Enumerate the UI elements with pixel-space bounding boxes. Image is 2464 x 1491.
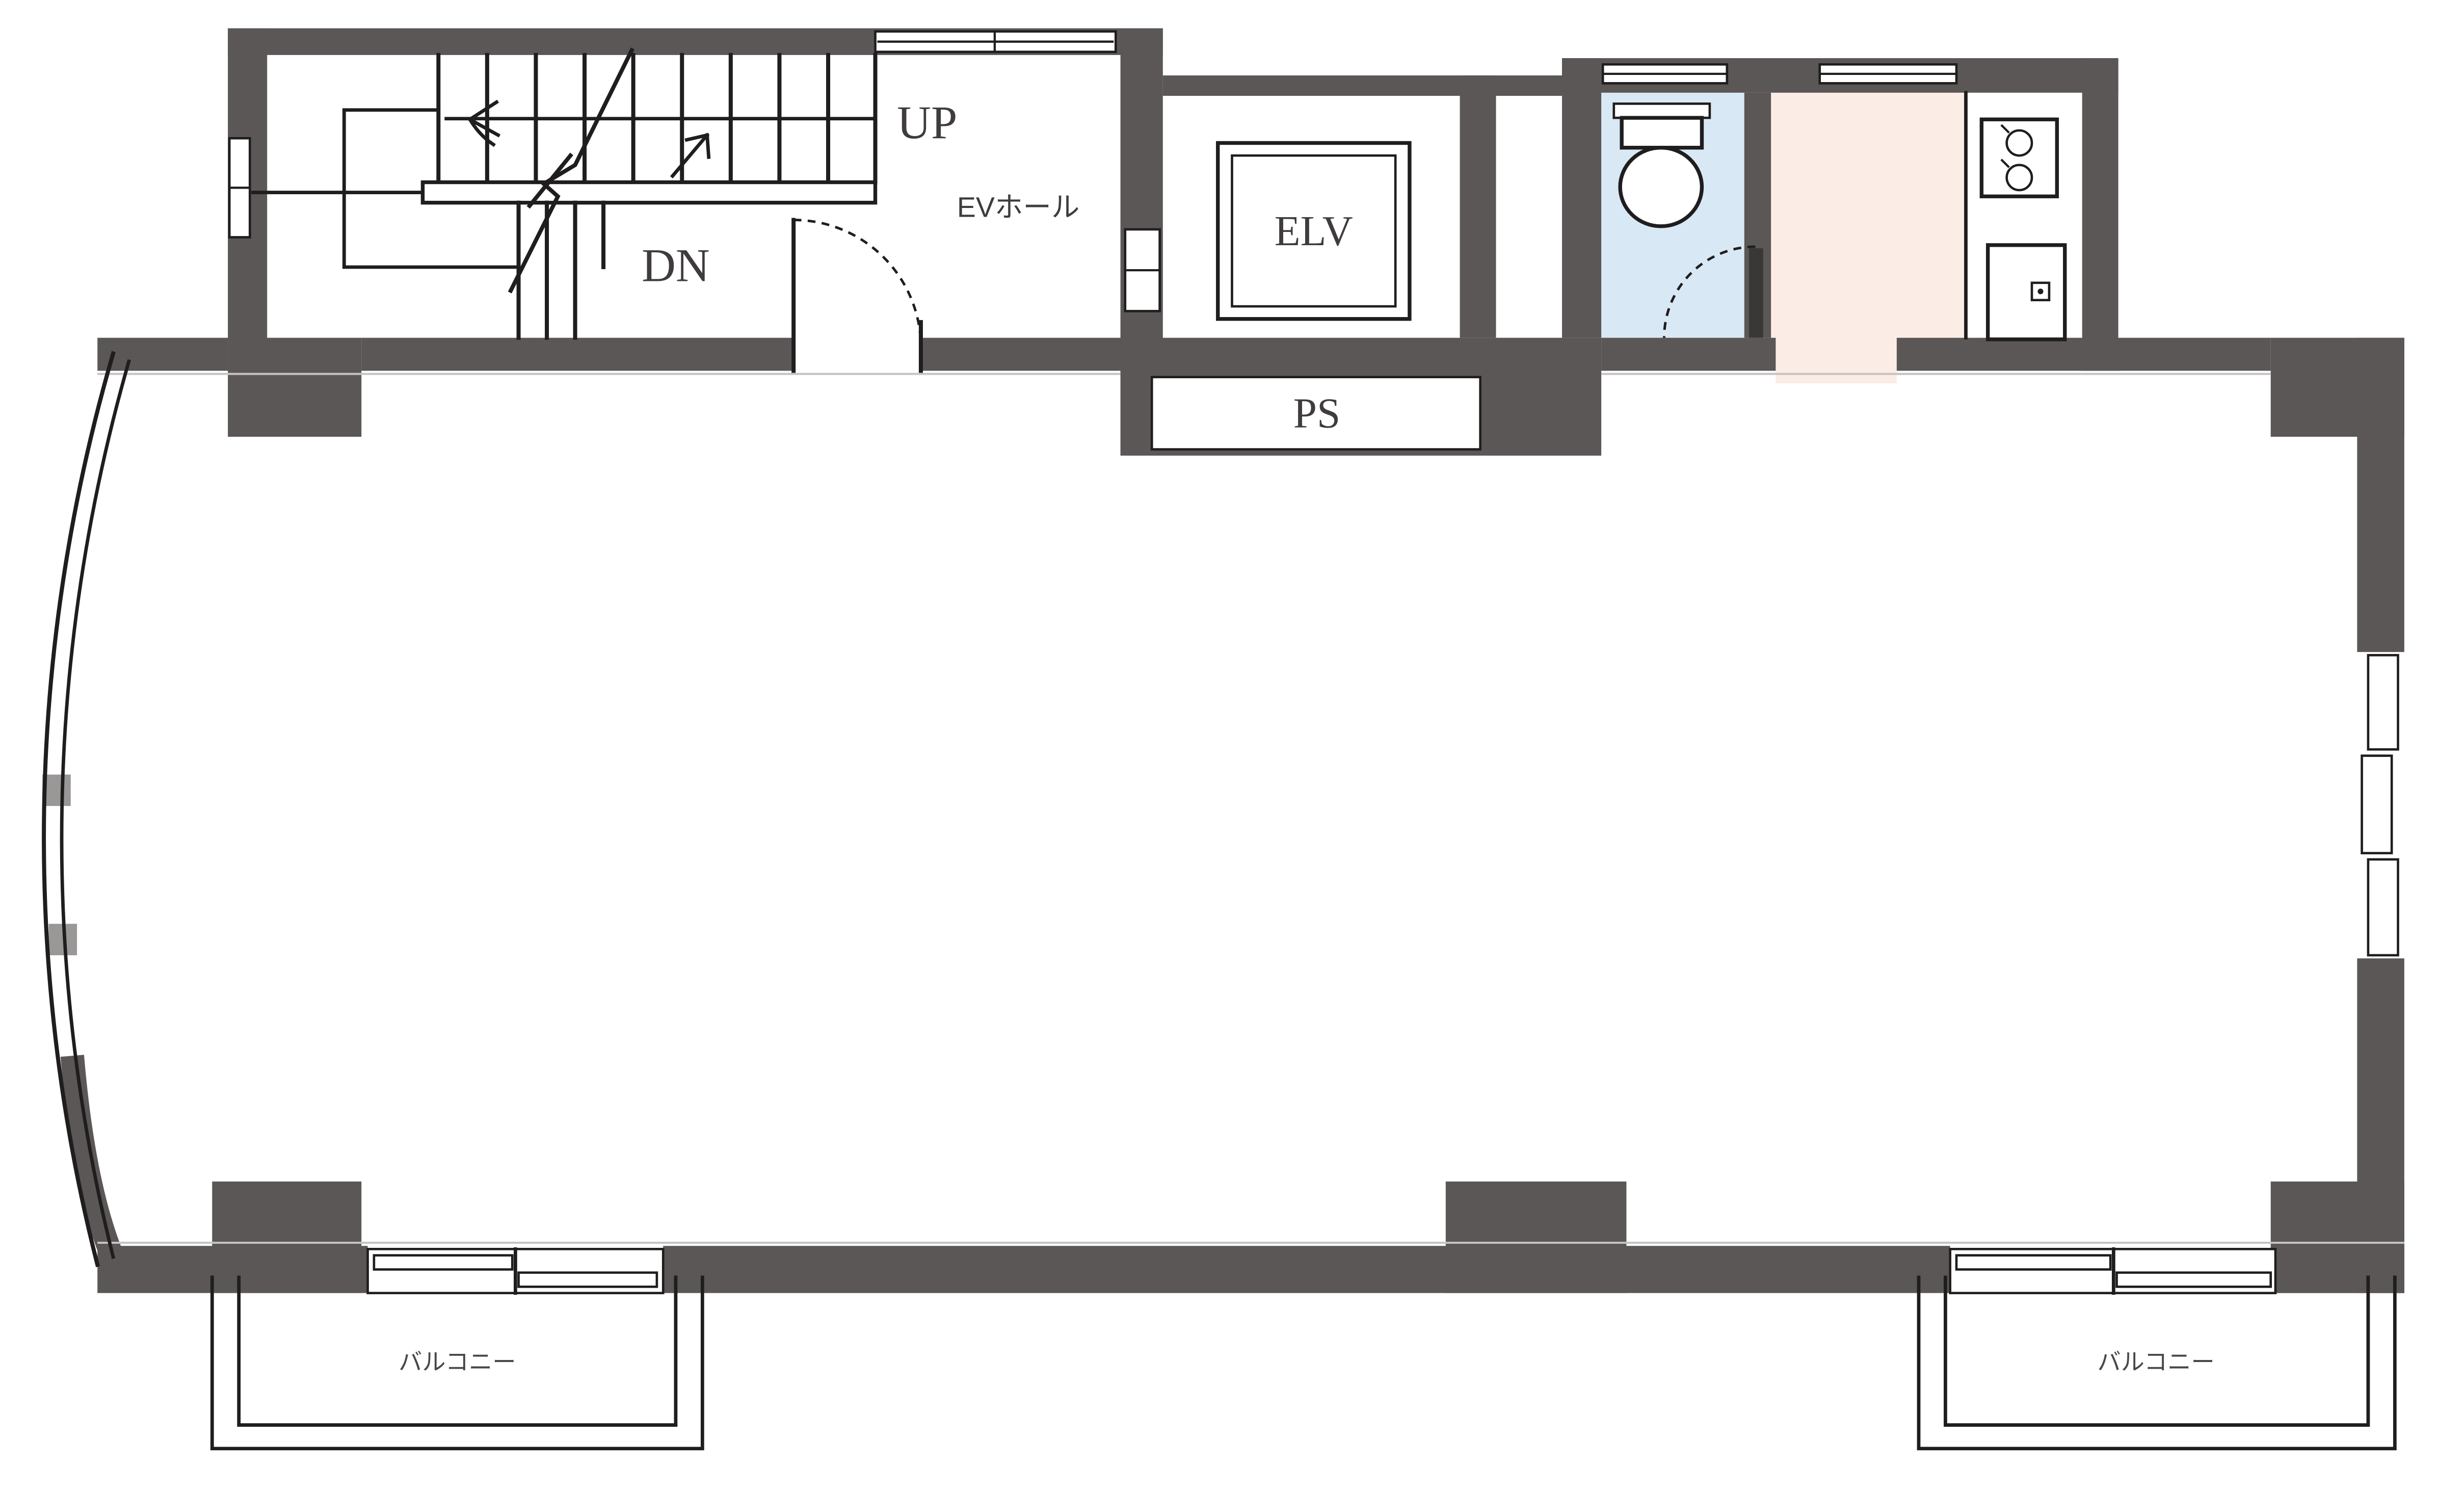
pipe-space-label: PS <box>1293 390 1341 437</box>
window-sash <box>2117 1273 2271 1287</box>
window-sash <box>374 1255 512 1270</box>
wall-segment <box>1460 75 1496 338</box>
balcony-label: バルコニー <box>2097 1349 2214 1375</box>
elevator-label: ELV <box>1275 208 1353 255</box>
wall-segment <box>1897 338 2271 371</box>
right-wall-window <box>2368 655 2398 749</box>
right-wall-window <box>2362 756 2392 853</box>
toilet-lid <box>1614 103 1710 118</box>
balcony-left: バルコニー <box>212 1277 702 1449</box>
wall-segment <box>1496 75 1562 96</box>
balcony-right: バルコニー <box>1919 1277 2395 1449</box>
toilet-bowl <box>1620 148 1702 226</box>
balcony-left-sliding-window <box>368 1249 664 1293</box>
right-wall-window <box>2368 859 2398 955</box>
pipe-space: PS <box>1152 377 1480 450</box>
wall-segment <box>97 338 228 371</box>
wall-segment <box>1601 338 1776 371</box>
pillar-bottom-mid <box>1446 1182 1627 1293</box>
faucet-dot <box>2037 289 2043 294</box>
stove-burner-icon <box>2007 165 2032 190</box>
toilet-door-leaf <box>1749 248 1763 338</box>
down-label: DN <box>642 240 710 292</box>
wall-segment <box>663 1246 1950 1293</box>
floor-plan-drawing: ELV PS <box>0 0 2464 1491</box>
pillar-bottom-left <box>212 1182 361 1293</box>
curved-window-wall <box>42 353 129 1265</box>
wall-segment <box>2357 338 2404 652</box>
elevator-hall-label: EVホール <box>957 191 1080 223</box>
wall-segment <box>1562 58 1601 338</box>
up-label: UP <box>897 97 957 149</box>
stove-burner-icon <box>2007 130 2032 155</box>
room-interiors <box>267 55 2082 383</box>
wall-segment <box>1163 75 1496 96</box>
wall-segment <box>921 338 1121 371</box>
window-sash <box>1956 1255 2110 1270</box>
wall-segment <box>1121 28 1163 371</box>
stair-railing <box>422 182 875 203</box>
window-sash <box>519 1273 657 1287</box>
balcony-right-sliding-window <box>1950 1249 2275 1293</box>
kitchen-entry-floor <box>1776 338 1896 383</box>
balcony-label: バルコニー <box>399 1349 516 1375</box>
wall-segment <box>2275 1246 2404 1293</box>
kitchen-floor <box>1771 93 1966 338</box>
toilet-tank <box>1622 118 1702 148</box>
sink <box>1988 245 2065 339</box>
wall-segment <box>2082 58 2118 371</box>
wall-segment <box>361 338 793 371</box>
floor-plan-page: ELV PS <box>0 0 2464 1491</box>
pillar-top-left <box>228 338 361 437</box>
service-gap-floor <box>1496 96 1562 338</box>
